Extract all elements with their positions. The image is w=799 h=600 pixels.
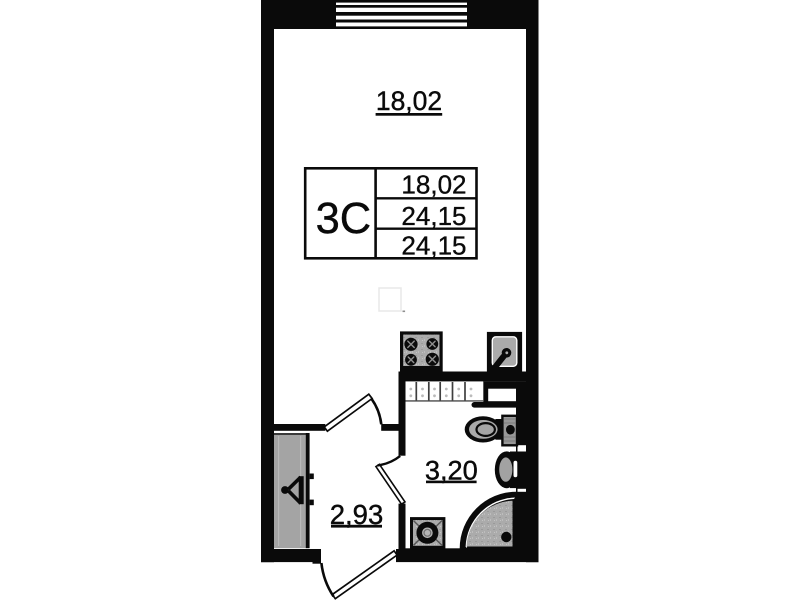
svg-text:18,02: 18,02 <box>401 170 466 200</box>
svg-text:3C: 3C <box>316 195 372 243</box>
svg-text:18,02: 18,02 <box>376 86 442 116</box>
svg-text:24,15: 24,15 <box>401 201 466 231</box>
svg-text:24,15: 24,15 <box>401 231 466 261</box>
